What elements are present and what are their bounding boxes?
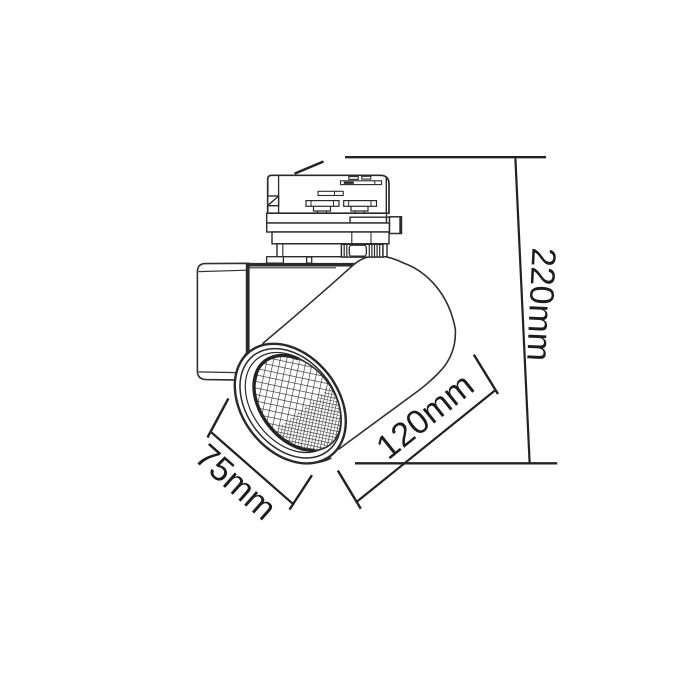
svg-text:220mm: 220mm: [519, 247, 562, 362]
